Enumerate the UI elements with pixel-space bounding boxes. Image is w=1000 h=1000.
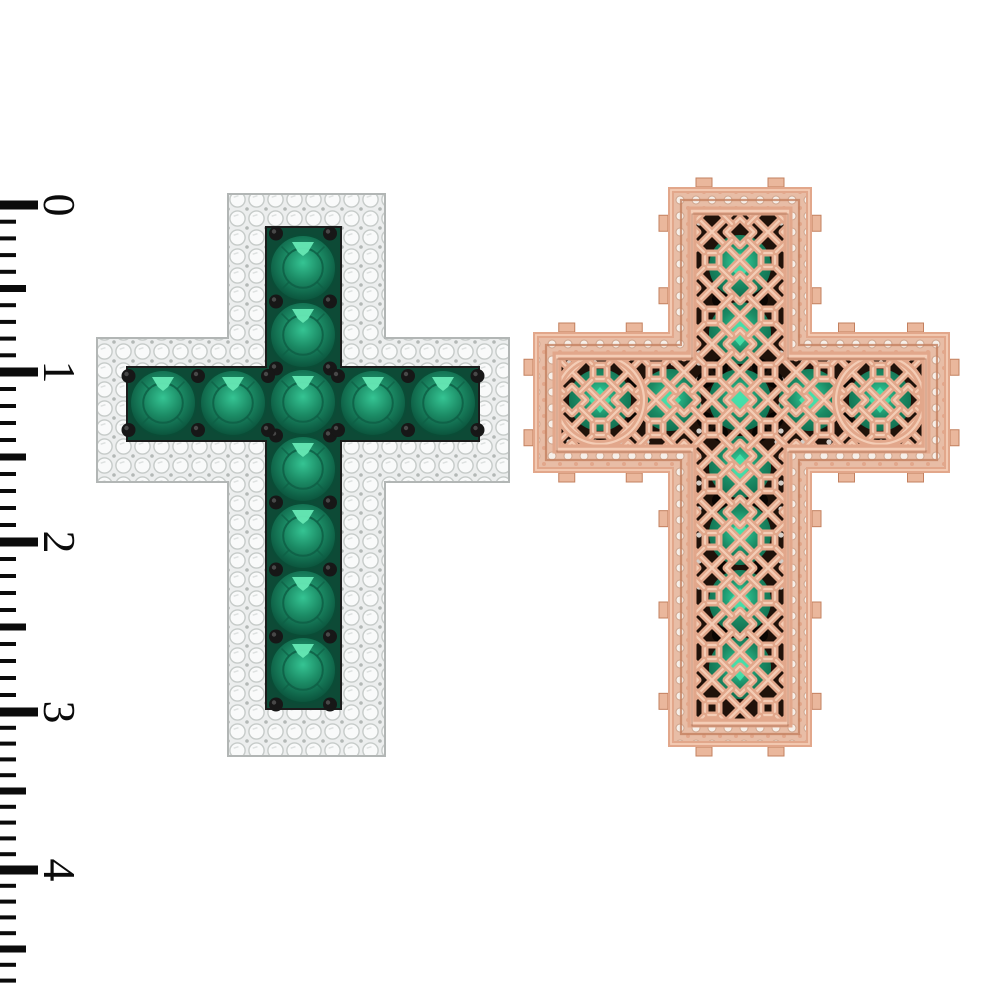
prong-tab bbox=[626, 323, 642, 332]
ruler-minor-tick bbox=[0, 591, 16, 595]
prong-tab bbox=[559, 473, 575, 482]
prong-bead bbox=[323, 630, 337, 644]
prong-tab bbox=[659, 288, 668, 304]
prong-bead bbox=[261, 369, 275, 383]
ruler-minor-tick bbox=[0, 821, 16, 825]
ruler-number: 3 bbox=[34, 701, 85, 724]
ruler-minor-tick bbox=[0, 557, 16, 561]
ruler-minor-tick bbox=[0, 852, 16, 856]
prong-bead bbox=[323, 295, 337, 309]
prong-tab bbox=[524, 359, 533, 375]
prong-tab bbox=[626, 473, 642, 482]
ruler-minor-tick bbox=[0, 805, 16, 809]
prong-bead bbox=[269, 698, 283, 712]
prong-tab bbox=[659, 215, 668, 231]
prong-tab bbox=[812, 288, 821, 304]
prong-tab bbox=[950, 359, 959, 375]
ruler-minor-tick bbox=[0, 472, 16, 476]
product-image: 01234 bbox=[0, 0, 1000, 1000]
prong-bead bbox=[331, 369, 345, 383]
ruler-minor-tick bbox=[0, 726, 16, 730]
ruler-minor-tick bbox=[0, 963, 16, 967]
emerald-stone bbox=[270, 235, 336, 301]
ruler-minor-tick bbox=[0, 353, 16, 357]
ruler-minor-tick bbox=[0, 337, 16, 341]
emerald-stone bbox=[270, 503, 336, 569]
prong-tab bbox=[908, 473, 924, 482]
ruler-minor-tick bbox=[0, 438, 16, 442]
emerald-stone bbox=[410, 370, 476, 436]
ruler: 01234 bbox=[0, 194, 85, 983]
front-cross-pendant bbox=[97, 194, 509, 756]
prong-tab bbox=[908, 323, 924, 332]
ruler-minor-tick bbox=[0, 915, 16, 919]
ruler-minor-tick bbox=[0, 642, 16, 646]
ruler-half-tick bbox=[0, 946, 26, 953]
ruler-major-tick bbox=[0, 708, 38, 717]
ruler-minor-tick bbox=[0, 574, 16, 578]
ruler-major-tick bbox=[0, 201, 38, 210]
prong-bead bbox=[122, 423, 136, 437]
ruler-minor-tick bbox=[0, 236, 16, 240]
prong-bead bbox=[269, 496, 283, 510]
prong-bead bbox=[401, 423, 415, 437]
ruler-minor-tick bbox=[0, 693, 16, 697]
ruler-minor-tick bbox=[0, 676, 16, 680]
render-canvas: 01234 bbox=[0, 0, 1000, 1000]
ruler-ticks bbox=[0, 201, 38, 983]
prong-tab bbox=[839, 323, 855, 332]
prong-tab bbox=[659, 511, 668, 527]
emerald-stone bbox=[270, 436, 336, 502]
ruler-major-tick bbox=[0, 866, 38, 875]
prong-tab bbox=[659, 602, 668, 618]
prong-bead bbox=[191, 369, 205, 383]
emerald-stone bbox=[270, 637, 336, 703]
ruler-minor-tick bbox=[0, 900, 16, 904]
prong-tab bbox=[839, 473, 855, 482]
prong-tab bbox=[696, 178, 712, 187]
prong-bead bbox=[401, 369, 415, 383]
ruler-minor-tick bbox=[0, 387, 16, 391]
prong-tab bbox=[812, 693, 821, 709]
ruler-major-tick bbox=[0, 368, 38, 377]
prong-tab bbox=[812, 215, 821, 231]
ruler-minor-tick bbox=[0, 757, 16, 761]
prong-bead bbox=[471, 369, 485, 383]
prong-bead bbox=[471, 423, 485, 437]
ruler-minor-tick bbox=[0, 608, 16, 612]
prong-tab bbox=[659, 693, 668, 709]
ruler-minor-tick bbox=[0, 320, 16, 324]
ruler-minor-tick bbox=[0, 270, 16, 274]
emerald-stone bbox=[200, 370, 266, 436]
prong-tab bbox=[768, 747, 784, 756]
ruler-half-tick bbox=[0, 624, 26, 631]
prong-bead bbox=[122, 369, 136, 383]
ruler-minor-tick bbox=[0, 773, 16, 777]
prong-bead bbox=[269, 227, 283, 241]
prong-bead bbox=[331, 423, 345, 437]
ruler-half-tick bbox=[0, 788, 26, 795]
ruler-minor-tick bbox=[0, 404, 16, 408]
ruler-minor-tick bbox=[0, 253, 16, 257]
prong-tab bbox=[812, 511, 821, 527]
ruler-minor-tick bbox=[0, 836, 16, 840]
prong-bead bbox=[191, 423, 205, 437]
ruler-minor-tick bbox=[0, 506, 16, 510]
ruler-minor-tick bbox=[0, 220, 16, 224]
ruler-number: 4 bbox=[34, 859, 85, 882]
prong-tab bbox=[696, 747, 712, 756]
ruler-major-tick bbox=[0, 538, 38, 547]
ruler-number: 2 bbox=[34, 531, 85, 554]
ruler-minor-tick bbox=[0, 884, 16, 888]
prong-tab bbox=[768, 178, 784, 187]
emerald-stone bbox=[270, 570, 336, 636]
ruler-minor-tick bbox=[0, 421, 16, 425]
ruler-half-tick bbox=[0, 454, 26, 461]
ruler-number: 0 bbox=[34, 194, 85, 217]
ruler-minor-tick bbox=[0, 659, 16, 663]
prong-tab bbox=[524, 430, 533, 446]
ruler-minor-tick bbox=[0, 931, 16, 935]
ruler-minor-tick bbox=[0, 742, 16, 746]
ruler-number: 1 bbox=[34, 361, 85, 384]
prong-tab bbox=[812, 602, 821, 618]
prong-bead bbox=[323, 698, 337, 712]
prong-bead bbox=[261, 423, 275, 437]
ruler-half-tick bbox=[0, 285, 26, 292]
prong-bead bbox=[269, 295, 283, 309]
prong-bead bbox=[323, 496, 337, 510]
ruler-minor-tick bbox=[0, 303, 16, 307]
prong-bead bbox=[269, 630, 283, 644]
ruler-minor-tick bbox=[0, 523, 16, 527]
prong-bead bbox=[323, 227, 337, 241]
prong-bead bbox=[323, 563, 337, 577]
ruler-labels: 01234 bbox=[34, 194, 85, 882]
emerald-stone bbox=[270, 369, 336, 435]
back-cross-pendant bbox=[524, 178, 959, 756]
ruler-minor-tick bbox=[0, 979, 16, 983]
emerald-stone bbox=[130, 370, 196, 436]
emerald-stone bbox=[270, 302, 336, 368]
prong-tab bbox=[559, 323, 575, 332]
ruler-minor-tick bbox=[0, 489, 16, 493]
prong-tab bbox=[950, 430, 959, 446]
prong-bead bbox=[269, 563, 283, 577]
emerald-stone bbox=[340, 370, 406, 436]
